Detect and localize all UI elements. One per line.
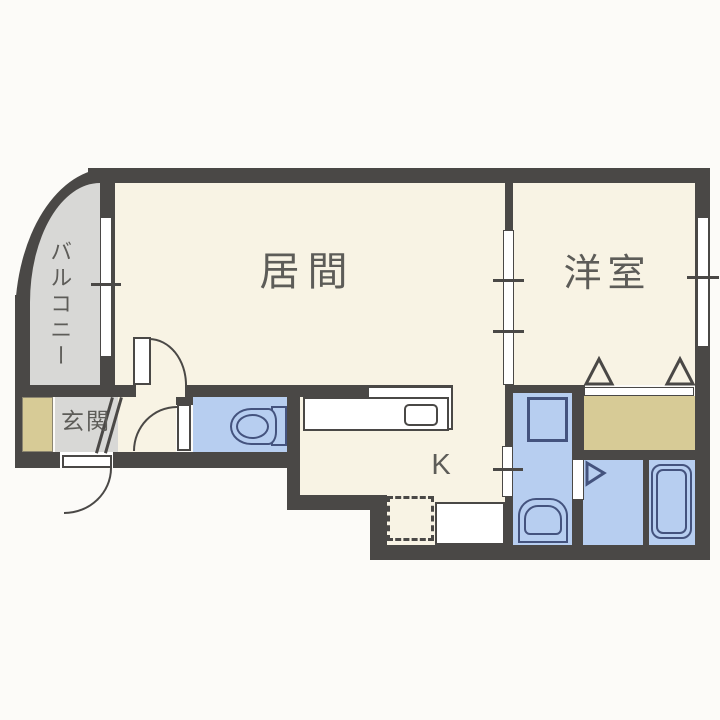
- toilet-door-leaf: [177, 404, 191, 451]
- toilet-bowl: [230, 408, 277, 445]
- kitchen-label: K: [421, 450, 461, 482]
- washroom-sliding-door: [502, 446, 513, 497]
- wall-toilet-right: [287, 397, 300, 510]
- kitchen-doorway: [453, 385, 505, 397]
- shoe-cabinet: [22, 397, 53, 452]
- entrance-door-leaf: [62, 455, 112, 468]
- wall-bottom-left: [15, 452, 300, 468]
- living-room-label: 居間: [235, 250, 380, 294]
- sliding-door-tick-1: [493, 279, 524, 282]
- bathroom-door-triangle: [585, 461, 607, 487]
- closet-floor: [584, 396, 695, 450]
- wall-top: [88, 168, 710, 183]
- washbasin: [518, 498, 568, 543]
- refrigerator-space: [387, 496, 434, 541]
- wall-bottom: [370, 545, 710, 560]
- kitchen-sink: [404, 404, 438, 426]
- balcony-window-tick: [91, 283, 121, 286]
- balcony-window: [100, 217, 112, 357]
- closet-door-triangle-right: [665, 356, 695, 387]
- bathtub: [651, 464, 692, 539]
- balcony-label: バルコニー: [47, 222, 71, 387]
- washroom-door-tick: [493, 468, 523, 471]
- wall-closet-bottom: [583, 450, 695, 460]
- closet-sliding-door: [584, 387, 694, 396]
- western-room-window: [697, 217, 709, 347]
- hall-doorway: [136, 385, 185, 397]
- toilet-bowl-inner: [236, 414, 269, 439]
- floor-plan: 居間 洋室 バルコニー 玄関 K: [0, 0, 720, 720]
- western-room-label: 洋室: [535, 254, 680, 296]
- washing-machine: [527, 397, 568, 442]
- washbasin-inner: [524, 505, 562, 535]
- sliding-door-tick-2: [493, 330, 524, 333]
- wall-nook-left: [370, 510, 387, 546]
- kitchen-nook-counter: [435, 502, 505, 545]
- western-window-tick: [687, 276, 719, 279]
- closet-door-triangle-left: [584, 356, 614, 387]
- entrance-label: 玄関: [56, 409, 116, 434]
- wall-kitchen-bottom: [295, 495, 387, 510]
- entrance-door-swing: [64, 468, 112, 514]
- living-western-sliding-door: [503, 230, 514, 385]
- bathtub-inner: [656, 469, 687, 534]
- bathroom-door-strip: [572, 459, 584, 500]
- wall-living-bottom-west: [15, 385, 136, 397]
